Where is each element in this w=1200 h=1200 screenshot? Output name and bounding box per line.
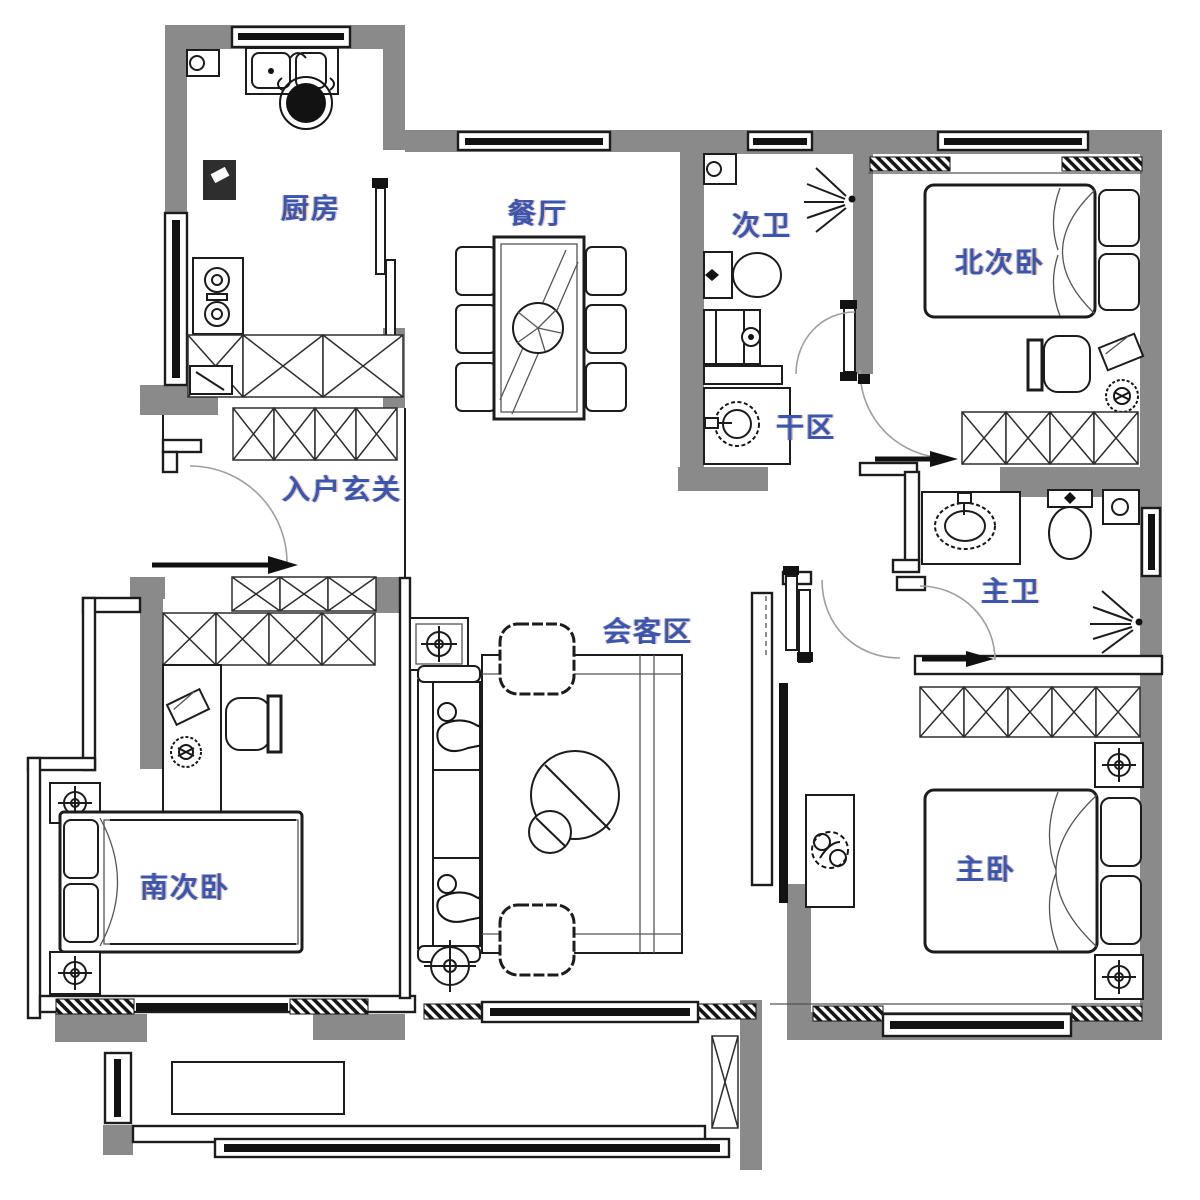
kitchen-sink xyxy=(246,48,338,94)
master-bath-window xyxy=(1142,508,1160,576)
balcony-cabinet xyxy=(172,1062,344,1114)
living-furniture xyxy=(410,618,682,992)
nightstand-lamp-1 xyxy=(1095,743,1143,787)
dining-window xyxy=(458,132,610,150)
cutting-board xyxy=(203,160,236,200)
toilet-2 xyxy=(704,252,781,298)
toilet-master xyxy=(1048,490,1092,559)
room-label-bedroom-master: 主卧 xyxy=(956,848,1016,888)
shower-spray-2 xyxy=(804,168,856,232)
living-balcony-slider xyxy=(424,1002,756,1022)
room-label-bedroom-north: 北次卧 xyxy=(955,241,1045,281)
nightstand-lamp-2 xyxy=(1095,955,1143,999)
room-label-living-area: 会客区 xyxy=(603,610,693,650)
kitchen-counter xyxy=(188,335,403,397)
south-bedroom-furniture xyxy=(50,577,376,994)
balcony-side-window xyxy=(105,1053,131,1123)
south-desk-chair xyxy=(226,696,281,752)
north-wardrobe xyxy=(962,412,1138,464)
floor-cushion-1 xyxy=(500,624,574,694)
bath2-door xyxy=(796,300,857,381)
south-wardrobe xyxy=(163,613,375,665)
stove xyxy=(193,258,243,334)
bath2-window xyxy=(748,132,812,150)
kitchen-side-window xyxy=(165,213,187,385)
room-label-bath-second: 次卫 xyxy=(732,204,792,244)
north-book xyxy=(1099,334,1143,370)
tv-panel xyxy=(779,683,788,903)
room-label-bedroom-south: 南次卧 xyxy=(140,866,230,906)
master-bedroom-furniture xyxy=(779,683,1143,999)
shower-spray-master xyxy=(1090,591,1143,653)
dining-set xyxy=(456,237,626,419)
room-label-dining: 餐厅 xyxy=(508,192,568,232)
sofa-side-table xyxy=(410,618,468,670)
entry-door xyxy=(152,466,298,574)
corner-shelf xyxy=(704,154,736,184)
fridge xyxy=(187,50,219,76)
balcony xyxy=(172,1036,738,1128)
north-bedroom-furniture xyxy=(925,185,1143,464)
master-basin xyxy=(922,492,1020,564)
balcony-sliding-window xyxy=(133,1126,729,1157)
master-plant xyxy=(806,795,854,907)
cooking-pot xyxy=(278,77,334,129)
floor-cushion-2 xyxy=(500,905,574,975)
kitchen-window xyxy=(232,27,350,47)
washing-machine xyxy=(704,310,782,384)
north-plant xyxy=(1106,380,1138,412)
north-desk-chair xyxy=(1028,336,1090,392)
room-label-entry-foyer: 入户玄关 xyxy=(282,468,402,508)
room-label-bath-master: 主卫 xyxy=(981,570,1041,610)
master-suite-sliding-door xyxy=(766,566,900,662)
master-wardrobe xyxy=(920,687,1140,737)
kitchen-sliding-door xyxy=(372,178,399,356)
north-bedroom-door xyxy=(858,370,958,467)
water-heater xyxy=(1103,490,1139,524)
room-label-kitchen: 厨房 xyxy=(281,187,341,227)
entry-shoe-cabinet xyxy=(233,408,397,460)
sofa xyxy=(418,666,480,962)
south-nightstand-2 xyxy=(50,952,100,994)
dining-table xyxy=(494,237,584,419)
kitchen-furniture xyxy=(187,48,403,460)
structural-column xyxy=(712,1036,738,1128)
south-wardrobe-upper xyxy=(232,577,376,611)
floor-plan: 厨房 餐厅 次卫 北次卧 干区 入户玄关 会客区 主卫 南次卧 主卧 xyxy=(0,0,1200,1200)
room-label-dry-area: 干区 xyxy=(776,406,836,446)
